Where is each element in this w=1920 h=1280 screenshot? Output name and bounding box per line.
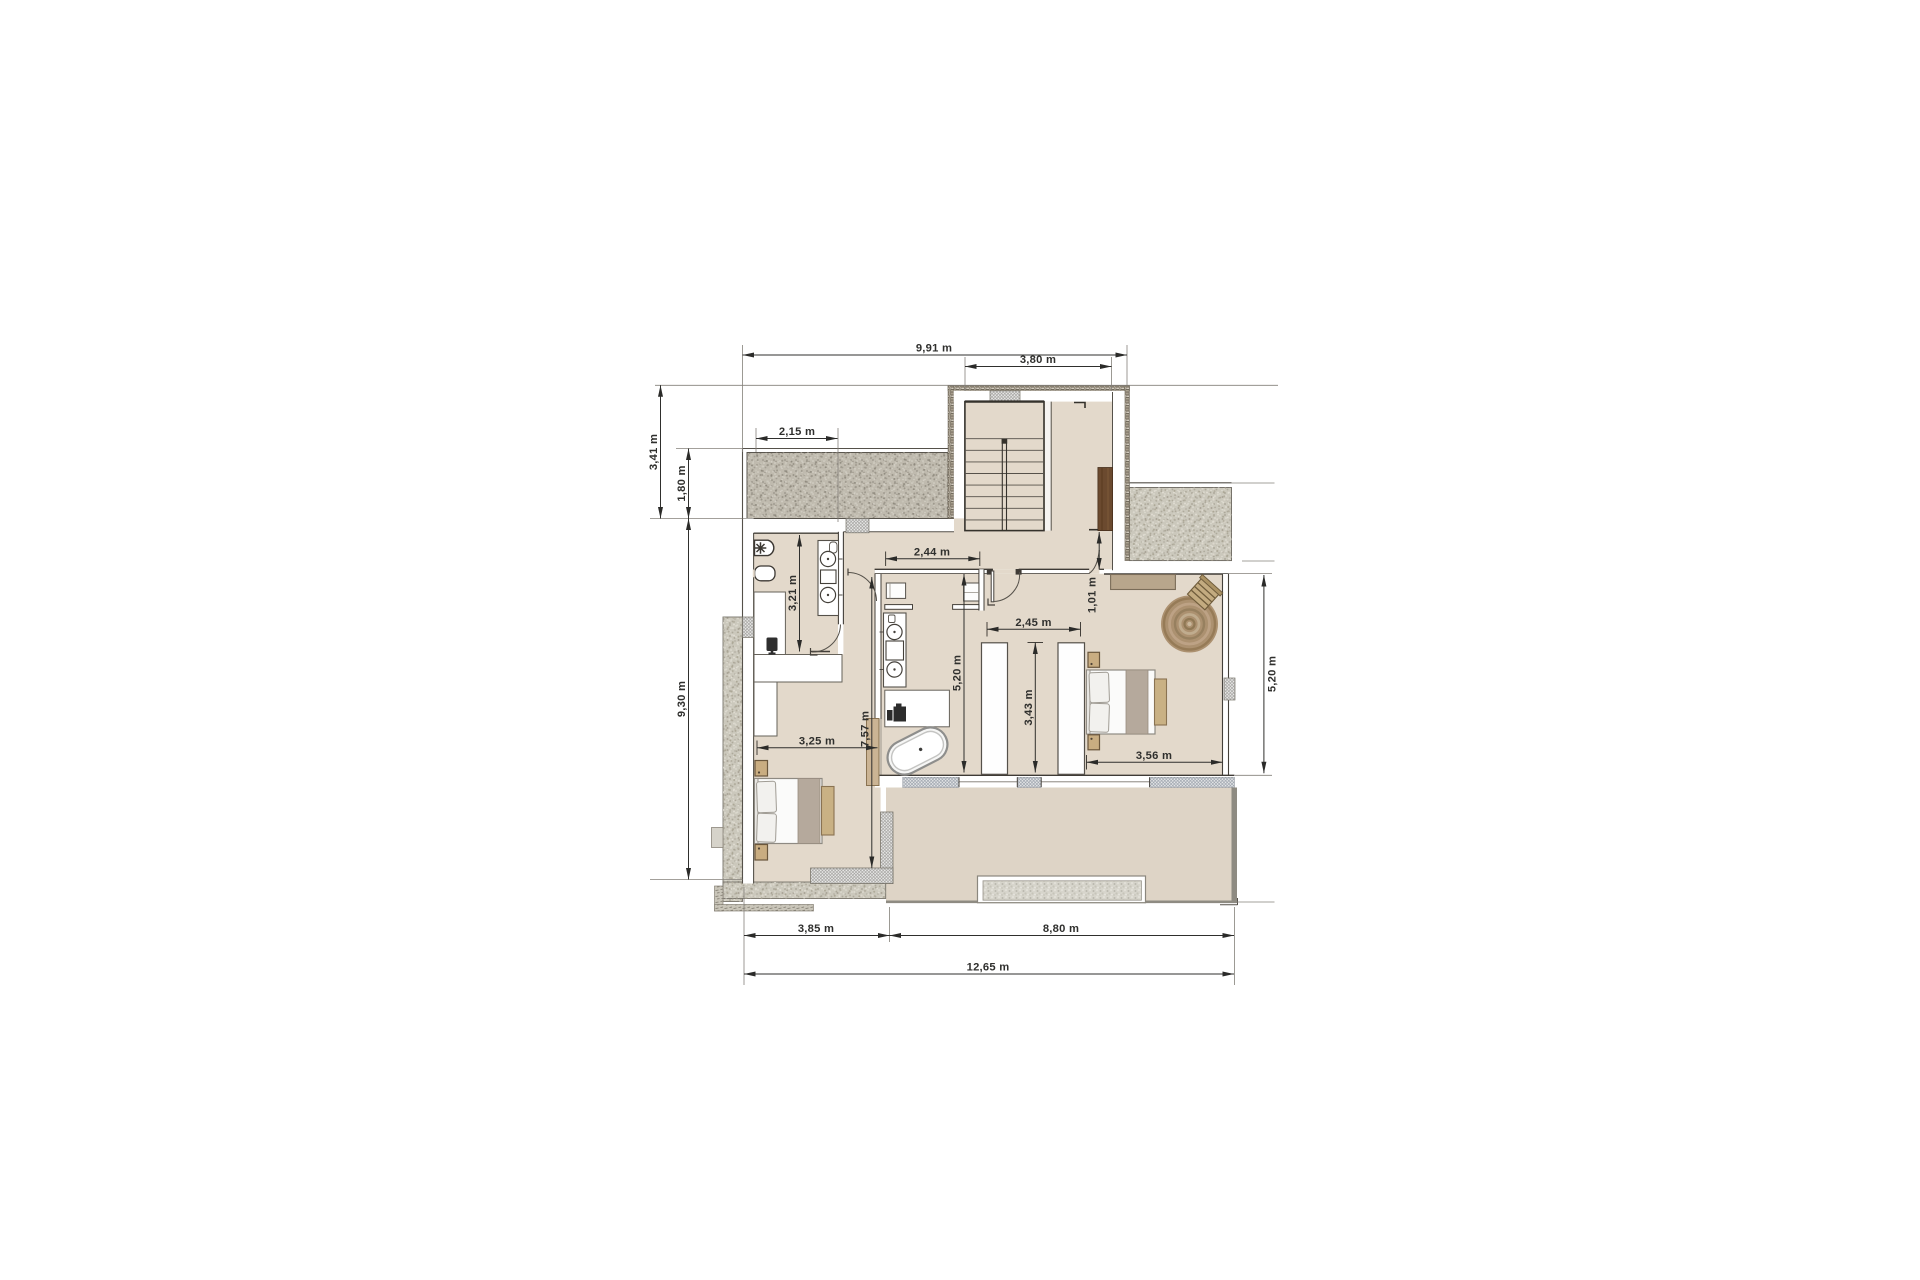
svg-text:2,44 m: 2,44 m bbox=[914, 546, 950, 558]
svg-text:3,85 m: 3,85 m bbox=[798, 923, 834, 935]
svg-text:3,25 m: 3,25 m bbox=[799, 735, 835, 747]
svg-text:9,91 m: 9,91 m bbox=[916, 343, 952, 355]
svg-text:8,80 m: 8,80 m bbox=[1043, 923, 1079, 935]
svg-text:2,15 m: 2,15 m bbox=[779, 426, 815, 438]
svg-text:3,41 m: 3,41 m bbox=[648, 434, 660, 470]
svg-text:3,21 m: 3,21 m bbox=[787, 575, 799, 611]
svg-text:2,45 m: 2,45 m bbox=[1015, 617, 1051, 629]
svg-text:3,56 m: 3,56 m bbox=[1136, 750, 1172, 762]
svg-text:7,57 m: 7,57 m bbox=[859, 711, 871, 747]
svg-text:12,65 m: 12,65 m bbox=[967, 962, 1010, 974]
svg-text:3,80 m: 3,80 m bbox=[1020, 354, 1056, 366]
svg-text:1,80 m: 1,80 m bbox=[676, 465, 688, 501]
svg-text:9,30 m: 9,30 m bbox=[676, 681, 688, 717]
svg-text:5,20 m: 5,20 m bbox=[952, 655, 964, 691]
svg-text:5,20 m: 5,20 m bbox=[1266, 656, 1278, 692]
svg-text:1,01 m: 1,01 m bbox=[1087, 577, 1099, 613]
svg-text:3,43 m: 3,43 m bbox=[1023, 689, 1035, 725]
